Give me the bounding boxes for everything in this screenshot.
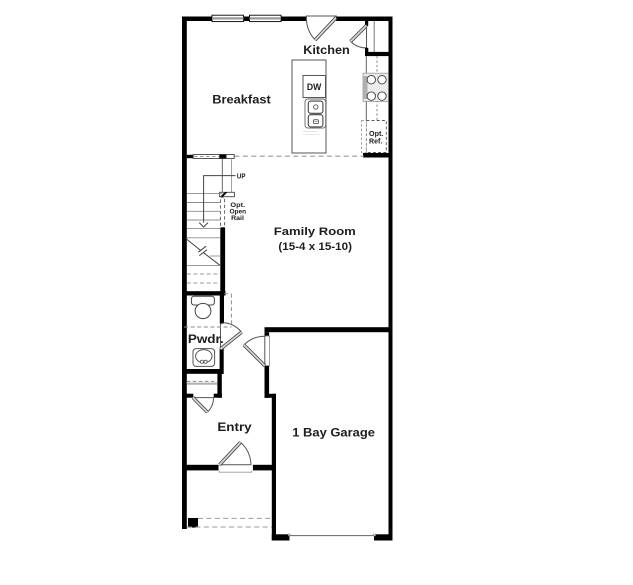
svg-text:UP: UP	[237, 174, 246, 181]
svg-text:Entry: Entry	[217, 421, 252, 434]
svg-text:Family Room: Family Room	[274, 226, 356, 238]
svg-text:Opt.: Opt.	[369, 131, 383, 138]
svg-text:Rail: Rail	[231, 215, 244, 222]
svg-text:Pwdr.: Pwdr.	[188, 332, 224, 346]
svg-text:Ref.: Ref.	[369, 138, 382, 145]
svg-text:(15-4 x 15-10): (15-4 x 15-10)	[278, 241, 352, 253]
svg-text:Kitchen: Kitchen	[303, 44, 350, 57]
svg-text:DW: DW	[307, 82, 322, 93]
svg-text:1 Bay Garage: 1 Bay Garage	[292, 427, 375, 440]
svg-text:Breakfast: Breakfast	[212, 94, 271, 107]
